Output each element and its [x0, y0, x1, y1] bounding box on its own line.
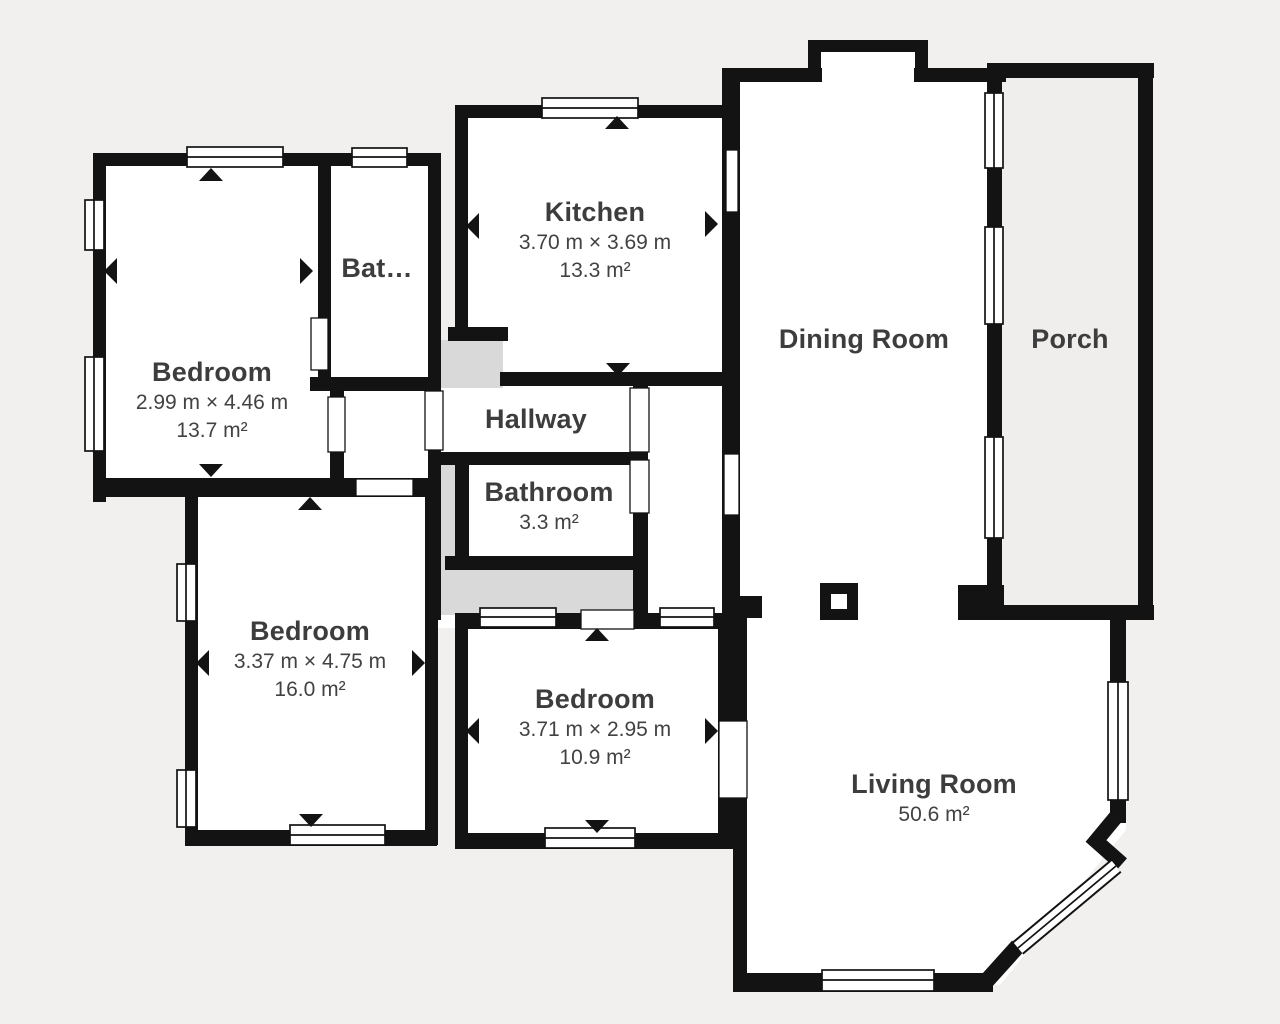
window	[985, 227, 1003, 324]
room-name: Dining Room	[779, 324, 949, 356]
room-area: 13.3 m²	[519, 257, 671, 285]
window	[480, 608, 556, 627]
window	[985, 93, 1003, 168]
window	[985, 437, 1003, 538]
room-dimensions: 2.99 m × 4.46 m	[136, 389, 288, 417]
room-area: 50.6 m²	[851, 801, 1017, 829]
room-name: Living Room	[851, 769, 1017, 801]
room-label-kitchen: Kitchen 3.70 m × 3.69 m 13.3 m²	[519, 197, 671, 284]
window	[1108, 682, 1128, 800]
room-area: 16.0 m²	[234, 676, 386, 704]
room-dimensions: 3.70 m × 3.69 m	[519, 229, 671, 257]
room-name: Hallway	[485, 404, 587, 436]
room-label-bedroom-top-left: Bedroom 2.99 m × 4.46 m 13.7 m²	[136, 357, 288, 444]
window	[177, 770, 196, 827]
window	[290, 825, 385, 845]
window	[187, 147, 283, 167]
window	[660, 608, 714, 627]
room-label-hallway: Hallway	[485, 404, 587, 436]
room-label-bedroom-bottom-mid: Bedroom 3.71 m × 2.95 m 10.9 m²	[519, 684, 671, 771]
window	[352, 148, 407, 167]
room-name: Bat…	[341, 253, 412, 285]
window	[542, 98, 638, 118]
window	[85, 200, 104, 250]
room-name: Porch	[1031, 324, 1109, 356]
room-name: Bathroom	[484, 477, 613, 509]
window	[822, 970, 934, 991]
room-label-bathroom-truncated: Bat…	[341, 253, 412, 285]
room-name: Bedroom	[519, 684, 671, 716]
room-label-dining-room: Dining Room	[779, 324, 949, 356]
chimney-column	[820, 583, 858, 620]
window	[545, 828, 635, 848]
room-label-bedroom-bottom-left: Bedroom 3.37 m × 4.75 m 16.0 m²	[234, 616, 386, 703]
room-label-porch: Porch	[1031, 324, 1109, 356]
room-dimensions: 3.71 m × 2.95 m	[519, 716, 671, 744]
floor-plan: Bedroom 2.99 m × 4.46 m 13.7 m² Bat… Kit…	[0, 0, 1280, 1024]
room-area: 10.9 m²	[519, 744, 671, 772]
room-name: Kitchen	[519, 197, 671, 229]
floor-plan-drawing	[0, 0, 1280, 1024]
window	[177, 564, 196, 621]
room-name: Bedroom	[136, 357, 288, 389]
room-area: 3.3 m²	[484, 509, 613, 537]
room-area: 13.7 m²	[136, 417, 288, 445]
window	[85, 357, 104, 451]
room-name: Bedroom	[234, 616, 386, 648]
room-dimensions: 3.37 m × 4.75 m	[234, 648, 386, 676]
room-label-bathroom: Bathroom 3.3 m²	[484, 477, 613, 537]
room-label-living-room: Living Room 50.6 m²	[851, 769, 1017, 829]
